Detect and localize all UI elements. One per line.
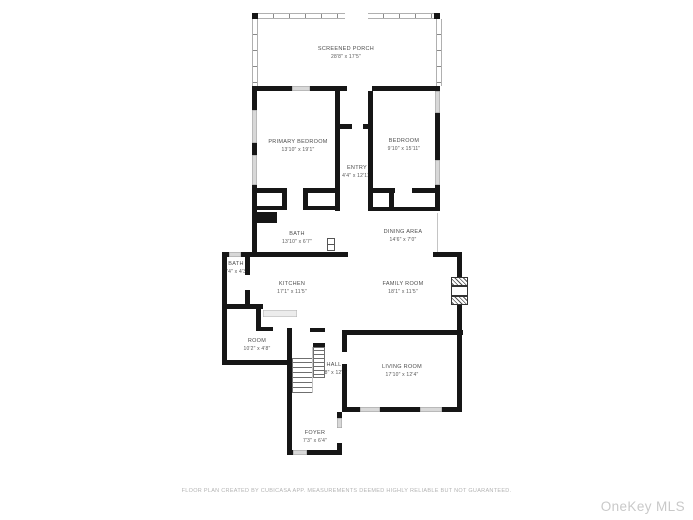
window — [229, 252, 241, 257]
room-name: KITCHEN — [277, 280, 307, 289]
window — [292, 86, 310, 91]
staircase-upper-flight — [313, 347, 325, 378]
wall-segment — [282, 188, 287, 210]
room-dims: 14'6" x 7'0" — [384, 236, 423, 244]
fireplace-hatch — [451, 296, 468, 305]
room-label-screened-porch: SCREENED PORCH 28'8" x 17'5" — [318, 45, 374, 61]
wall-segment — [372, 86, 440, 91]
fireplace-hatch — [451, 277, 468, 286]
wall-segment — [380, 407, 420, 412]
staircase-lower-flight — [292, 358, 313, 393]
room-name: FOYER — [303, 429, 327, 438]
room-label-room: ROOM 10'2" x 4'8" — [243, 337, 270, 353]
wall-segment — [252, 143, 257, 155]
room-dims: 10'2" x 4'8" — [243, 345, 270, 353]
wall-segment — [342, 407, 360, 412]
room-label-dining-area: DINING AREA 14'6" x 7'0" — [384, 228, 423, 244]
wall-segment — [303, 206, 337, 210]
wall-segment — [252, 86, 292, 91]
room-dims: 13'10" x 19'1" — [268, 146, 327, 154]
wall-segment — [241, 252, 348, 257]
wall-segment — [368, 207, 435, 211]
wall-segment — [342, 330, 347, 352]
room-dims: 28'8" x 17'5" — [318, 53, 374, 61]
room-label-primary-bedroom: PRIMARY BEDROOM 13'10" x 19'1" — [268, 138, 327, 154]
wall-segment — [256, 309, 261, 328]
wall-segment — [457, 257, 462, 277]
window — [337, 418, 342, 428]
wall-segment — [287, 413, 292, 455]
wall-segment — [435, 185, 440, 211]
wall-segment — [363, 124, 368, 129]
wall-segment — [340, 124, 352, 129]
wall-segment — [256, 327, 273, 331]
room-label-kitchen: KITCHEN 17'1" x 11'5" — [277, 280, 307, 296]
screen-wall — [252, 19, 258, 86]
room-label-family-room: FAMILY ROOM 18'1" x 11'5" — [383, 280, 424, 296]
screen-wall — [368, 13, 434, 19]
room-name: SCREENED PORCH — [318, 45, 374, 54]
screen-wall — [258, 13, 345, 19]
wall-segment — [335, 91, 340, 211]
room-dims: 9'10" x 15'11" — [388, 145, 421, 153]
wall-segment — [457, 330, 462, 412]
wall-segment — [245, 290, 250, 304]
window — [293, 450, 307, 455]
wall-segment — [252, 91, 257, 110]
room-dims: 17'1" x 11'5" — [277, 288, 307, 296]
room-dims: 13'10" x 6'7" — [282, 238, 312, 246]
wall-segment — [310, 86, 347, 91]
wall-segment — [345, 330, 463, 335]
wall-segment — [305, 188, 337, 193]
window — [252, 155, 257, 185]
room-label-foyer: FOYER 7'3" x 6'4" — [303, 429, 327, 445]
wall-segment — [222, 360, 292, 365]
room-name: ROOM — [243, 337, 270, 346]
wall-segment — [310, 328, 325, 332]
room-name: FAMILY ROOM — [383, 280, 424, 289]
fireplace-box — [451, 286, 468, 296]
kitchen-counter — [263, 310, 297, 317]
window — [435, 160, 440, 185]
window — [420, 407, 442, 412]
room-name: PRIMARY BEDROOM — [268, 138, 327, 147]
wall-segment — [368, 91, 373, 211]
room-dims: 18'1" x 11'5" — [383, 288, 424, 296]
window — [435, 91, 440, 113]
room-label-bedroom: BEDROOM 9'10" x 15'11" — [388, 137, 421, 153]
wall-segment — [337, 443, 342, 455]
room-label-living-room: LIVING ROOM 17'10" x 12'4" — [382, 363, 422, 379]
room-label-bath: BATH 13'10" x 6'7" — [282, 230, 312, 246]
room-name: BEDROOM — [388, 137, 421, 146]
room-name: LIVING ROOM — [382, 363, 422, 372]
room-dims: 7'3" x 6'4" — [303, 437, 327, 445]
divider-line — [312, 347, 313, 393]
footer-disclaimer: FLOOR PLAN CREATED BY CUBICASA APP. MEAS… — [0, 488, 693, 494]
room-dims: 17'10" x 12'4" — [382, 371, 422, 379]
wall-segment — [435, 113, 440, 160]
wall-segment — [253, 206, 282, 210]
window — [252, 110, 257, 143]
wall-segment — [442, 407, 462, 412]
floor-plan-image: SCREENED PORCH 28'8" x 17'5" PRIMARY BED… — [0, 0, 693, 520]
wall-segment — [245, 257, 250, 275]
window — [360, 407, 380, 412]
room-name: DINING AREA — [384, 228, 423, 237]
wall-segment — [412, 188, 435, 193]
mls-watermark: OneKey MLS — [601, 499, 685, 514]
floor-plan-canvas: SCREENED PORCH 28'8" x 17'5" PRIMARY BED… — [0, 0, 693, 520]
toilet — [327, 238, 335, 251]
wall-segment — [252, 188, 282, 193]
room-name: BATH — [282, 230, 312, 239]
screen-wall — [436, 19, 442, 86]
wall-segment — [457, 305, 462, 330]
built-in-fixture — [253, 212, 277, 223]
wall-segment — [342, 364, 347, 407]
divider-line — [437, 213, 438, 252]
